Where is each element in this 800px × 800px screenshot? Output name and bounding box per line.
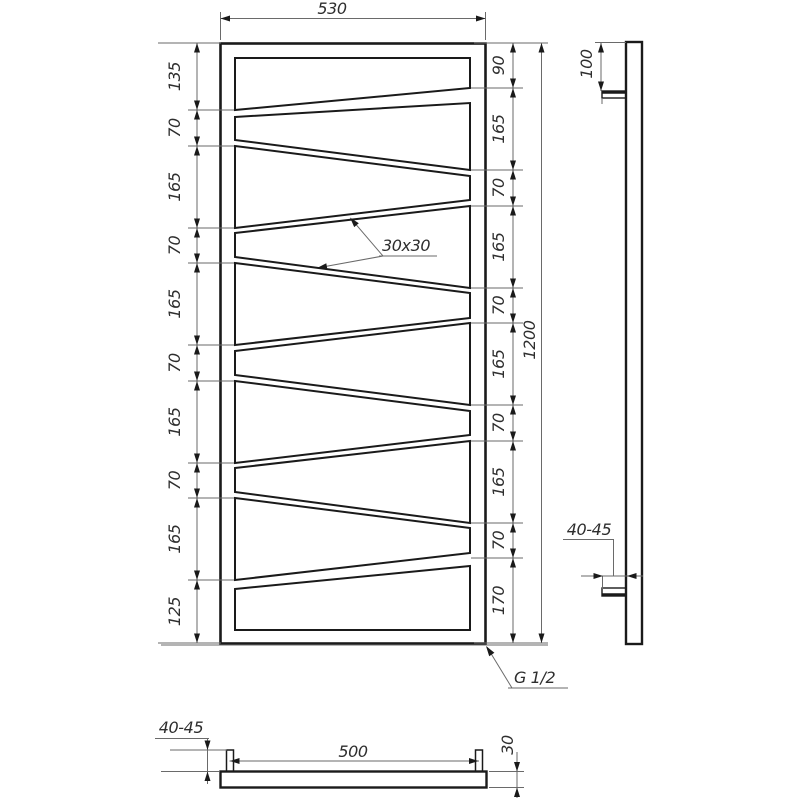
side-view-bar xyxy=(626,42,642,644)
thread-size-label: G 1/2 xyxy=(514,668,555,687)
dim-arrow xyxy=(194,454,200,464)
dim-arrow xyxy=(594,573,604,579)
dim-arrow xyxy=(194,43,200,53)
dim-label: 90 xyxy=(489,56,508,76)
dim-arrow xyxy=(598,43,604,53)
dim-label: 135 xyxy=(165,62,184,92)
technical-drawing-canvas: 530 1200 13570165701657016570165125 9016… xyxy=(0,0,800,800)
dim-arrow xyxy=(514,788,520,798)
dim-label: 70 xyxy=(165,471,184,491)
dim-arrow xyxy=(510,549,516,559)
bracket-spacing-label: 500 xyxy=(338,742,368,761)
depth-dimension: 30 xyxy=(489,735,524,798)
dim-arrow xyxy=(194,571,200,581)
dim-arrow xyxy=(476,16,486,22)
side-top-bracket xyxy=(602,91,627,104)
dim-arrow xyxy=(194,463,200,473)
dim-arrow xyxy=(194,101,200,111)
dim-arrow xyxy=(194,381,200,391)
dim-arrow xyxy=(510,314,516,324)
dim-arrow xyxy=(205,741,211,751)
dim-arrow xyxy=(510,523,516,533)
dim-arrow xyxy=(194,345,200,355)
dim-label: 165 xyxy=(489,114,508,144)
dim-arrow xyxy=(510,279,516,289)
dim-arrow xyxy=(194,219,200,229)
dim-arrow xyxy=(510,170,516,180)
dim-arrow xyxy=(510,323,516,333)
dim-arrow xyxy=(510,197,516,207)
dim-arrow xyxy=(539,634,545,644)
dim-label: 70 xyxy=(489,296,508,316)
dim-arrow xyxy=(539,43,545,53)
dim-arrow xyxy=(205,772,211,782)
side-wall-clearance-label: 40-45 xyxy=(567,520,612,539)
dim-label: 165 xyxy=(165,407,184,437)
dim-arrow xyxy=(194,263,200,273)
technical-drawing-page: 530 1200 13570165701657016570165125 9016… xyxy=(0,0,800,800)
top-view: 500 40-45 30 xyxy=(155,718,524,798)
dim-arrow xyxy=(510,634,516,644)
dim-arrow xyxy=(194,228,200,238)
dim-arrow xyxy=(510,288,516,298)
tube-size-label: 30x30 xyxy=(382,236,430,255)
dim-arrow xyxy=(194,489,200,499)
dim-label: 165 xyxy=(165,289,184,319)
width-dimension: 530 xyxy=(221,0,486,40)
side-view: 100 40-45 xyxy=(563,42,643,644)
dim-label: 165 xyxy=(165,524,184,554)
dim-label: 165 xyxy=(489,349,508,379)
dim-arrow xyxy=(221,16,231,22)
dim-arrow xyxy=(194,110,200,120)
overall-width-label: 530 xyxy=(317,0,347,18)
dim-arrow xyxy=(510,206,516,216)
side-bracket-offset-label: 100 xyxy=(577,49,596,79)
dim-arrow xyxy=(194,254,200,264)
dim-arrow xyxy=(194,372,200,382)
dim-label: 70 xyxy=(489,413,508,433)
dim-label: 70 xyxy=(165,353,184,373)
dim-arrow xyxy=(194,498,200,508)
dim-arrow xyxy=(510,161,516,171)
dim-label: 165 xyxy=(165,172,184,202)
bracket-projection-dimension: 40-45 xyxy=(155,718,227,784)
dim-label: 125 xyxy=(165,597,184,627)
bracket-spacing-dimension: 500 xyxy=(230,742,480,764)
dim-label: 70 xyxy=(165,118,184,138)
dim-arrow xyxy=(194,336,200,346)
side-bracket-offset-dimension: 100 xyxy=(577,43,626,92)
dim-arrow xyxy=(510,558,516,568)
dim-arrow xyxy=(510,43,516,53)
dim-label: 165 xyxy=(489,467,508,497)
bracket-projection-label: 40-45 xyxy=(159,718,204,737)
dim-label: 170 xyxy=(489,586,508,616)
depth-label: 30 xyxy=(498,735,517,755)
overall-height-label: 1200 xyxy=(520,320,539,359)
dim-arrow xyxy=(510,396,516,406)
dim-arrow xyxy=(510,88,516,98)
dim-arrow xyxy=(510,79,516,89)
dim-arrow xyxy=(510,441,516,451)
dim-label: 70 xyxy=(489,178,508,198)
dim-arrow xyxy=(598,82,604,92)
front-view: 530 1200 13570165701657016570165125 9016… xyxy=(158,0,568,688)
dim-label: 70 xyxy=(165,236,184,256)
dim-label: 70 xyxy=(489,531,508,551)
dim-arrow xyxy=(194,580,200,590)
dim-arrow xyxy=(510,514,516,524)
side-bottom-bracket xyxy=(602,588,627,596)
top-view-bar xyxy=(221,772,487,788)
leader-arrow xyxy=(486,646,494,656)
dim-arrow xyxy=(510,405,516,415)
dim-arrow xyxy=(510,432,516,442)
dim-arrow xyxy=(194,634,200,644)
dim-arrow xyxy=(194,146,200,156)
dim-arrow xyxy=(514,762,520,772)
dim-arrow xyxy=(194,137,200,147)
thread-callout: G 1/2 xyxy=(486,646,568,688)
dim-label: 165 xyxy=(489,232,508,262)
